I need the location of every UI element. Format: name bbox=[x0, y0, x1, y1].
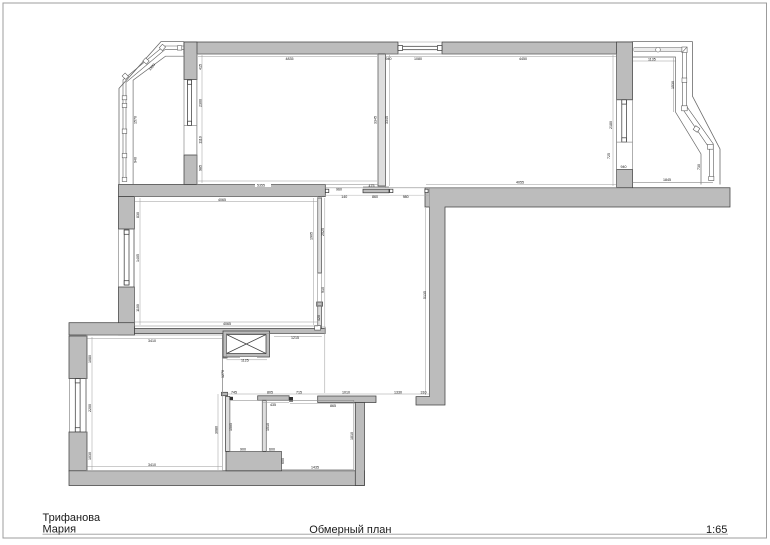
svg-text:3080: 3080 bbox=[215, 426, 219, 434]
svg-text:420: 420 bbox=[317, 315, 321, 321]
svg-text:Трифанова: Трифанова bbox=[43, 512, 101, 524]
svg-text:860: 860 bbox=[372, 195, 378, 199]
svg-text:830: 830 bbox=[136, 212, 140, 218]
svg-text:805: 805 bbox=[267, 390, 273, 394]
svg-text:1125: 1125 bbox=[241, 358, 249, 362]
svg-text:4065: 4065 bbox=[218, 198, 226, 202]
svg-text:910: 910 bbox=[321, 287, 325, 293]
svg-text:1270: 1270 bbox=[221, 370, 225, 378]
svg-text:1810: 1810 bbox=[350, 432, 354, 440]
svg-text:4450: 4450 bbox=[519, 57, 527, 61]
svg-text:940: 940 bbox=[386, 57, 392, 61]
svg-text:940: 940 bbox=[134, 157, 138, 163]
svg-text:5135: 5135 bbox=[423, 291, 427, 299]
svg-text:980: 980 bbox=[403, 195, 409, 199]
svg-text:1100: 1100 bbox=[136, 304, 140, 312]
svg-text:730: 730 bbox=[697, 164, 701, 170]
svg-text:310: 310 bbox=[421, 390, 427, 394]
svg-text:1080: 1080 bbox=[88, 355, 92, 363]
svg-text:1405: 1405 bbox=[136, 254, 140, 262]
svg-text:415: 415 bbox=[199, 64, 203, 70]
svg-text:5355: 5355 bbox=[257, 184, 265, 188]
svg-text:2180: 2180 bbox=[609, 121, 613, 129]
svg-text:745: 745 bbox=[231, 390, 237, 394]
svg-text:940: 940 bbox=[621, 165, 627, 169]
svg-text:865: 865 bbox=[330, 404, 336, 408]
svg-text:4055: 4055 bbox=[516, 181, 524, 185]
svg-text:1530: 1530 bbox=[671, 81, 675, 89]
svg-text:2300: 2300 bbox=[199, 99, 203, 107]
svg-text:435: 435 bbox=[270, 403, 276, 407]
svg-text:600: 600 bbox=[281, 458, 285, 464]
svg-text:1010: 1010 bbox=[342, 390, 350, 394]
svg-text:2525: 2525 bbox=[321, 228, 325, 236]
svg-text:1215: 1215 bbox=[291, 336, 299, 340]
svg-text:1505: 1505 bbox=[229, 423, 233, 431]
svg-text:140: 140 bbox=[341, 195, 347, 199]
svg-text:1845: 1845 bbox=[663, 178, 671, 182]
svg-text:1435: 1435 bbox=[311, 466, 319, 470]
svg-text:1030: 1030 bbox=[88, 452, 92, 460]
svg-text:4065: 4065 bbox=[223, 322, 231, 326]
svg-text:3410: 3410 bbox=[148, 463, 156, 467]
svg-text:2200: 2200 bbox=[88, 404, 92, 412]
svg-text:1135: 1135 bbox=[648, 58, 656, 62]
svg-text:1330: 1330 bbox=[394, 390, 402, 394]
svg-text:1080: 1080 bbox=[414, 57, 422, 61]
svg-text:1510: 1510 bbox=[266, 423, 270, 431]
svg-text:4835: 4835 bbox=[286, 57, 294, 61]
svg-text:900: 900 bbox=[240, 447, 246, 451]
svg-text:725: 725 bbox=[607, 153, 611, 159]
svg-text:3410: 3410 bbox=[148, 339, 156, 343]
svg-text:985: 985 bbox=[199, 165, 203, 171]
svg-text:3345: 3345 bbox=[373, 116, 377, 124]
svg-text:1110: 1110 bbox=[199, 136, 203, 143]
svg-text:600: 600 bbox=[269, 448, 275, 452]
svg-text:715: 715 bbox=[296, 390, 302, 394]
svg-text:1905: 1905 bbox=[310, 232, 314, 240]
svg-text:1570: 1570 bbox=[134, 116, 138, 124]
svg-text:3345: 3345 bbox=[385, 116, 389, 124]
